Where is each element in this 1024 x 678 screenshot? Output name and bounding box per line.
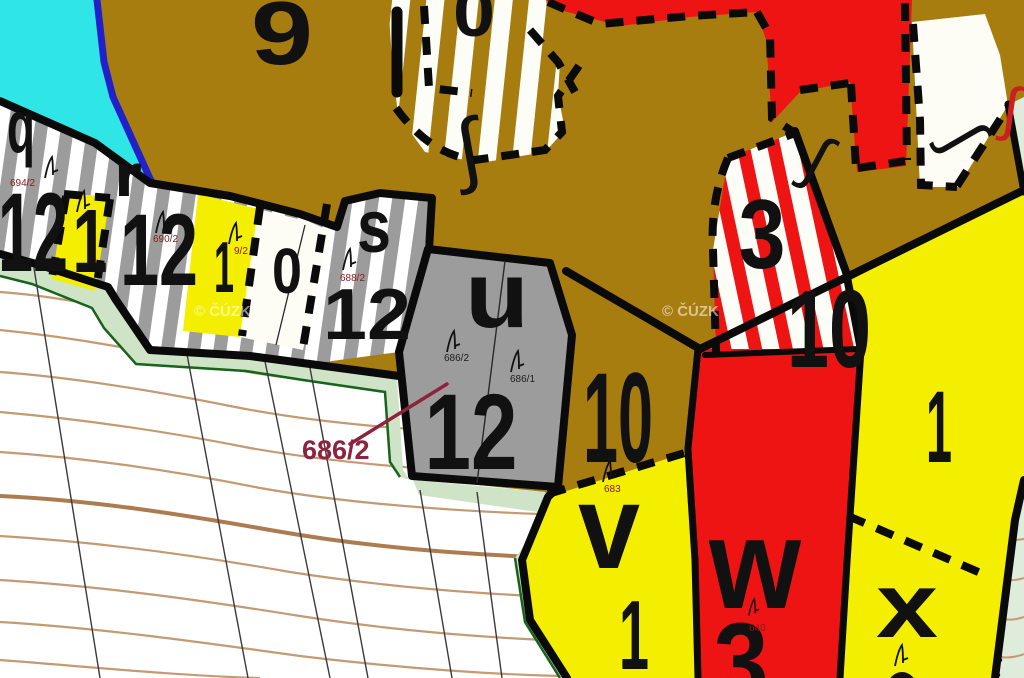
parcel-number: 1: [619, 580, 649, 678]
cadastral-map-canvas[interactable]: ∫ ∫ ∫ ∫ 9 0 q 12 1 r 12 1 0 s 12 u 12 10…: [0, 0, 1024, 678]
parcel-letter-u: u: [465, 242, 529, 347]
parcel-letter-s: s: [357, 185, 391, 268]
watermark-cuzk: © ČÚZK: [662, 302, 719, 320]
watermark-cuzk: © ČÚZK: [194, 302, 251, 320]
parcel-ref: 694/2: [10, 178, 35, 189]
parcel-ref: 683: [604, 484, 621, 495]
dashed-line: [851, 84, 856, 168]
parcel-ref: 9/2: [234, 246, 248, 257]
parcel-ref: 686/2: [444, 353, 469, 364]
parcel-number: 0: [453, 0, 495, 51]
parcel-ref: 688/2: [340, 273, 365, 284]
parcel-letter-v: v: [578, 460, 640, 594]
parcel-number: 3: [739, 179, 786, 289]
parcel-letter-q: q: [7, 85, 35, 168]
parcel-letter-x: x: [876, 555, 938, 657]
parcel-number: 12: [120, 193, 198, 307]
parcel-number: 0: [272, 235, 302, 307]
annotation-parcel-686-2: 686/2: [302, 435, 370, 465]
parcel-number: 1: [926, 370, 952, 484]
parcel-number: 10: [787, 268, 871, 391]
parcel-ref: 640: [749, 623, 766, 634]
parcel-number: 9: [251, 0, 313, 84]
parcel-number: 1: [73, 192, 108, 292]
parcel-number: 12: [323, 275, 411, 355]
parcel-number: 1: [214, 228, 234, 308]
parcel-number: 3: [714, 601, 769, 678]
parcel-ref: 690/2: [153, 234, 178, 245]
parcel-ref: 686/1: [510, 374, 535, 385]
